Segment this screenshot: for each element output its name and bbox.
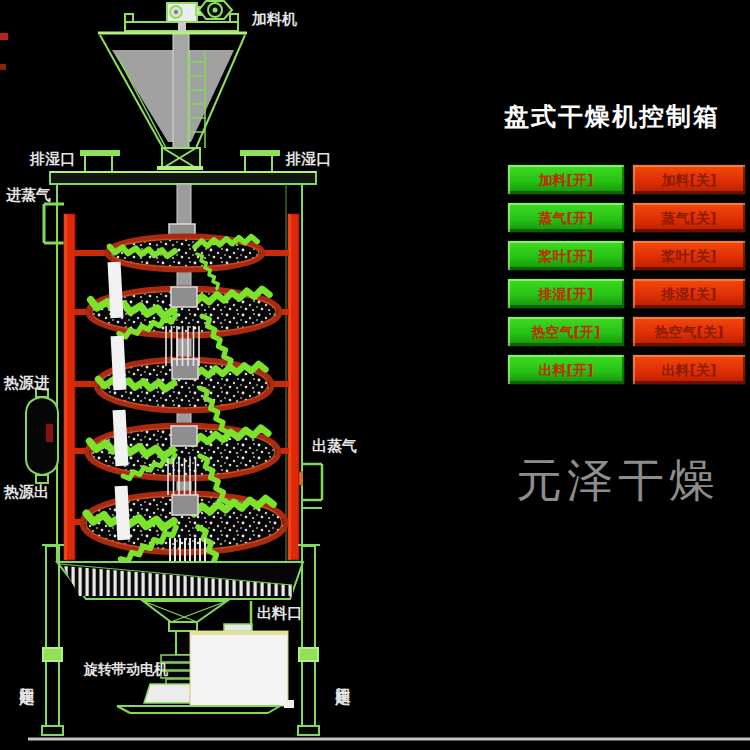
button-paddle-off[interactable]: 桨叶[关] bbox=[632, 240, 746, 271]
button-discharge-on[interactable]: 出料[开] bbox=[507, 354, 625, 385]
button-paddle-on[interactable]: 桨叶[开] bbox=[507, 240, 625, 271]
button-hotair-off[interactable]: 热空气[关] bbox=[632, 316, 746, 347]
on-button-column: 加料[开] 蒸气[开] 桨叶[开] 排湿[开] 热空气[开] 出料[开] bbox=[507, 164, 625, 385]
button-feed-off[interactable]: 加料[关] bbox=[632, 164, 746, 195]
button-discharge-off[interactable]: 出料[关] bbox=[632, 354, 746, 385]
steam-in-label: 进蒸气 bbox=[5, 186, 51, 204]
bottom-cone bbox=[57, 562, 303, 599]
moisture-left-label: 排湿口 bbox=[29, 150, 75, 168]
vessel-top-plate bbox=[50, 172, 316, 184]
steam-out-label: 出蒸气 bbox=[312, 437, 357, 455]
button-feed-on[interactable]: 加料[开] bbox=[507, 164, 625, 195]
panel-title: 盘式干燥机控制箱 bbox=[504, 100, 750, 133]
moisture-right-label: 排湿口 bbox=[285, 150, 331, 168]
heat-source-tank bbox=[26, 389, 58, 483]
off-button-column: 加料[关] 蒸气[关] 桨叶[关] 排湿[关] 热空气[关] 出料[关] bbox=[632, 164, 746, 385]
moisture-port-left bbox=[80, 150, 120, 156]
feeder-label: 加料机 bbox=[251, 10, 297, 28]
gearbox bbox=[144, 684, 192, 703]
screenshot-root: 加料机 排湿 bbox=[0, 0, 750, 750]
button-steam-on[interactable]: 蒸气[开] bbox=[507, 202, 625, 233]
discharge-label: 出料口 bbox=[257, 604, 302, 622]
watermark-text: 元泽干燥 bbox=[516, 450, 720, 512]
heat-out-label: 热源出 bbox=[3, 483, 49, 501]
button-dehumidify-on[interactable]: 排湿[开] bbox=[507, 278, 625, 309]
moisture-port-right bbox=[240, 150, 280, 156]
button-dehumidify-off[interactable]: 排湿[关] bbox=[632, 278, 746, 309]
drive-motor bbox=[190, 631, 294, 708]
button-steam-off[interactable]: 蒸气[关] bbox=[632, 202, 746, 233]
button-hotair-on[interactable]: 热空气[开] bbox=[507, 316, 625, 347]
heat-in-label: 热源进 bbox=[3, 374, 49, 392]
motor-label: 旋转带动电机 bbox=[83, 661, 169, 677]
